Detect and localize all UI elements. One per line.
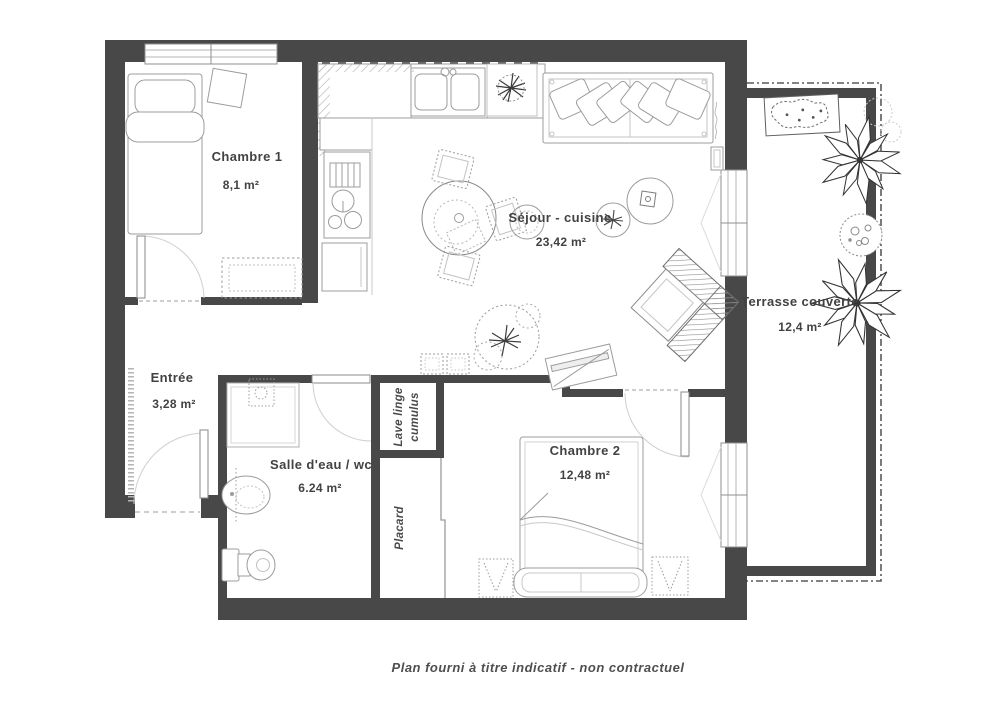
bedside-rug	[652, 557, 688, 595]
wall-segment	[371, 375, 380, 598]
window-chambre2-terrace	[701, 443, 747, 547]
side-table-lamp	[627, 178, 673, 224]
nightstand	[207, 68, 246, 107]
wall-segment	[725, 40, 747, 172]
room-area-chambre2: 12,48 m²	[560, 468, 610, 482]
wall-segment	[371, 450, 444, 458]
bed-single	[126, 74, 204, 234]
room-area-chambre1: 8,1 m²	[223, 178, 259, 192]
dining-table	[422, 181, 496, 255]
chambre1-furniture	[126, 68, 302, 298]
wall-segment	[436, 375, 444, 458]
kitchen-splashback-hatch	[318, 64, 414, 72]
wall-segment	[218, 598, 747, 620]
room-label-chambre1: Chambre 1	[212, 149, 283, 164]
sejour-furniture	[421, 73, 738, 390]
wall-segment	[302, 62, 318, 303]
wall-bench-stools	[421, 354, 469, 374]
plan-caption: Plan fourni à titre indicatif - non cont…	[392, 660, 685, 675]
room-label-salle-eau: Salle d'eau / wc	[270, 457, 372, 472]
kitchen-low-cabinet	[322, 243, 367, 291]
room-label-terrasse: Terrasse couverte	[741, 294, 859, 309]
terrace-decor	[764, 94, 915, 358]
sofa-brand-signature	[715, 102, 717, 139]
radiator-sejour	[711, 147, 723, 170]
placard-front-line	[441, 458, 445, 598]
closet-label-lave-linge-2: cumulus	[409, 392, 421, 441]
washbasin	[222, 468, 270, 524]
room-label-sejour: Séjour - cuisine	[508, 210, 611, 225]
shower	[227, 379, 299, 447]
wall-layer	[105, 40, 876, 620]
sofa	[543, 73, 713, 143]
door-salle-eau	[312, 375, 371, 441]
floor-plan-page: Chambre 1 8,1 m² Séjour - cuisine 23,42 …	[0, 0, 1000, 705]
window-chambre1	[145, 44, 277, 64]
floor-plant	[474, 304, 540, 370]
wall-segment	[105, 40, 125, 518]
door-entree	[134, 430, 208, 504]
window-sejour-terrace	[701, 170, 747, 276]
kitchen-block	[318, 64, 545, 296]
shrub	[840, 214, 882, 256]
wall-segment	[371, 375, 444, 383]
wall-segment	[562, 389, 623, 397]
room-area-terrasse: 12,4 m²	[778, 320, 821, 334]
tv-console	[545, 344, 617, 390]
wall-segment	[688, 389, 727, 397]
kitchen-cooktop	[324, 152, 370, 238]
bathroom-fixtures	[222, 379, 299, 581]
closet-label-lave-linge-1: Lave linge	[393, 387, 405, 447]
chambre2-furniture	[479, 437, 688, 597]
floor-plan-svg: Chambre 1 8,1 m² Séjour - cuisine 23,42 …	[0, 0, 1000, 705]
room-label-chambre2: Chambre 2	[550, 443, 621, 458]
door-chambre1	[137, 236, 204, 301]
kitchen-fridge	[320, 118, 372, 150]
storage-chest-dotted	[222, 258, 302, 298]
wall-segment	[105, 495, 135, 518]
wall-segment	[125, 297, 138, 305]
double-bed	[514, 437, 647, 597]
room-area-entree: 3,28 m²	[152, 397, 195, 411]
bed-footboard	[514, 568, 647, 597]
entree-fixtures	[131, 368, 200, 512]
toilet	[222, 549, 275, 581]
bedside-rug	[479, 559, 513, 597]
room-area-sejour: 23,42 m²	[536, 235, 586, 249]
room-area-salle-eau: 6.24 m²	[298, 481, 341, 495]
rock-bed	[764, 94, 840, 136]
wall-segment	[747, 566, 876, 576]
labels-layer: Chambre 1 8,1 m² Séjour - cuisine 23,42 …	[151, 149, 859, 675]
room-label-entree: Entrée	[151, 370, 194, 385]
wall-segment	[218, 375, 312, 383]
closet-label-placard: Placard	[394, 506, 406, 550]
